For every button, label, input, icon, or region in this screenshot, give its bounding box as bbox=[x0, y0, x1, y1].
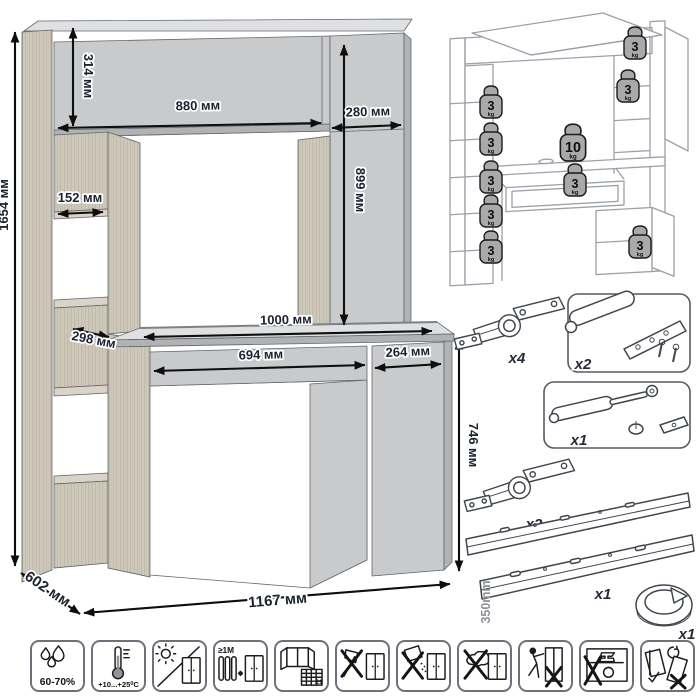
desk-left-side-panel bbox=[108, 334, 150, 577]
dim-drawer-width: 694 мм bbox=[238, 346, 283, 362]
partition-side bbox=[108, 132, 140, 334]
dim-total-width: 1167 мм bbox=[248, 590, 308, 612]
svg-text:21: 21 bbox=[316, 679, 324, 686]
svg-text:3: 3 bbox=[488, 244, 495, 258]
hinge-x2 bbox=[464, 459, 574, 511]
care-icon-row: 60-70% +10...+25⁰С ≥1M bbox=[30, 640, 698, 694]
svg-text:kg: kg bbox=[488, 112, 494, 118]
svg-text:3: 3 bbox=[488, 174, 495, 188]
svg-text:kg: kg bbox=[569, 154, 577, 161]
temperature-icon: +10...+25⁰С bbox=[91, 640, 146, 692]
assembly-diagram-page: 1654 мм 314 мм 880 мм 280 мм 899 мм 152 … bbox=[0, 0, 700, 700]
transport-upright-icon bbox=[640, 640, 695, 692]
no-sunlight-icon bbox=[152, 640, 207, 692]
no-heavy-objects-icon bbox=[579, 640, 634, 692]
gas-lift-x1 bbox=[544, 382, 690, 448]
humidity-drops-icon: 60-70% bbox=[33, 644, 82, 689]
svg-text:3: 3 bbox=[625, 83, 632, 97]
svg-text:≥1M: ≥1M bbox=[218, 644, 234, 654]
dim-desktop-width: 1000 мм bbox=[260, 311, 312, 327]
hinge-x4 bbox=[454, 297, 564, 349]
cable-grommet-x1 bbox=[636, 585, 692, 626]
drawer-slides-x1 bbox=[466, 493, 694, 599]
cabinet-inner-wall bbox=[310, 380, 367, 588]
left-side-panel bbox=[22, 30, 52, 582]
dim-hutch-width: 880 мм bbox=[176, 98, 221, 114]
hardware-list: x4 x2 x1 x2 bbox=[440, 285, 700, 655]
hutch-right-cabinet-side bbox=[404, 33, 411, 334]
hinge-x4-qty: x4 bbox=[508, 350, 526, 367]
svg-text:3: 3 bbox=[632, 40, 639, 54]
svg-text:kg: kg bbox=[488, 149, 494, 155]
svg-text:3: 3 bbox=[572, 177, 579, 191]
svg-text:3: 3 bbox=[488, 99, 495, 113]
svg-text:3: 3 bbox=[488, 136, 495, 150]
no-sharp-tools-icon bbox=[335, 640, 390, 692]
dimensioned-furniture-drawing: 1654 мм 314 мм 880 мм 280 мм 899 мм 152 … bbox=[0, 0, 475, 645]
person-dragging-icon bbox=[521, 644, 570, 689]
cabinet-door bbox=[372, 342, 444, 576]
slides-qty: x1 bbox=[594, 586, 612, 603]
no-wet-cleaning-icon bbox=[457, 640, 512, 692]
weight-3kg: 3 kg bbox=[617, 70, 639, 102]
dim-cabinet-top-width: 280 мм bbox=[345, 103, 390, 119]
svg-text:kg: kg bbox=[488, 257, 494, 263]
svg-text:3: 3 bbox=[637, 239, 644, 253]
anvil-in-cabinet-icon bbox=[582, 644, 631, 689]
upright-ok-fallen-crossed-icon bbox=[643, 644, 692, 689]
powder-crossed-icon bbox=[399, 644, 448, 689]
dim-depth: 602 мм bbox=[21, 568, 73, 611]
svg-text:kg: kg bbox=[637, 252, 643, 258]
load-capacity-drawing: 3 kg 3 kg 3 kg 3 kg 3 kg 3 kg bbox=[438, 3, 698, 293]
window-calendar-icon: 21 bbox=[277, 644, 326, 689]
svg-text:+10...+25⁰С: +10...+25⁰С bbox=[98, 680, 139, 689]
svg-text:kg: kg bbox=[625, 96, 631, 102]
axe-crossed-icon bbox=[338, 644, 387, 689]
dim-hutch-panel-height: 314 мм bbox=[81, 54, 96, 99]
wet-cloth-crossed-icon bbox=[460, 644, 509, 689]
svg-text:kg: kg bbox=[488, 221, 494, 227]
svg-text:kg: kg bbox=[632, 53, 638, 59]
no-dragging-icon bbox=[518, 640, 573, 692]
dim-cabinet-top-height: 899 мм bbox=[353, 168, 368, 213]
sun-cabinet-icon bbox=[155, 644, 204, 689]
dim-door-width: 264 мм bbox=[385, 343, 430, 360]
hutch-top-face bbox=[24, 19, 412, 31]
push-latch-qty: x2 bbox=[574, 356, 592, 373]
weight-10kg: 10 kg bbox=[560, 124, 585, 161]
dim-shelf-width: 152 мм bbox=[58, 190, 103, 205]
svg-text:kg: kg bbox=[488, 187, 494, 193]
gas-lift-qty: x1 bbox=[570, 432, 588, 449]
no-abrasives-icon bbox=[396, 640, 451, 692]
open-top-door bbox=[665, 27, 688, 151]
humidity-icon: 60-70% bbox=[30, 640, 85, 692]
slide-length: 350mm bbox=[479, 580, 493, 623]
thermometer-icon: +10...+25⁰С bbox=[94, 644, 143, 689]
dim-total-height: 1654 мм bbox=[0, 179, 11, 231]
svg-text:kg: kg bbox=[572, 190, 578, 196]
svg-text:60-70%: 60-70% bbox=[40, 677, 75, 688]
radiator-distance-icon: ≥1M bbox=[216, 644, 265, 689]
svg-text:3: 3 bbox=[488, 208, 495, 222]
heater-distance-icon: ≥1M bbox=[213, 640, 268, 692]
ventilation-icon: 21 bbox=[274, 640, 329, 692]
